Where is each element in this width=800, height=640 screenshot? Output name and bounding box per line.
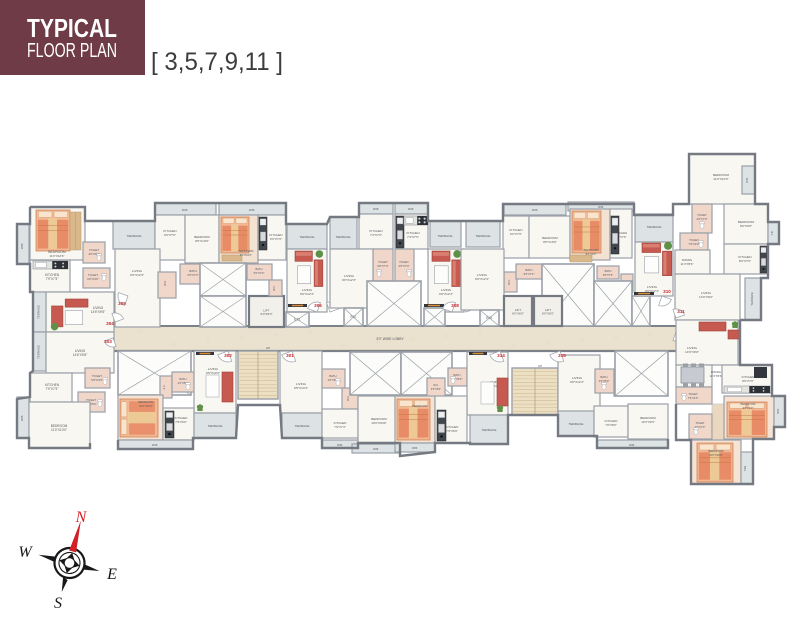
svg-text:UP: UP (538, 364, 542, 368)
svg-text:V.B.: V.B. (770, 230, 774, 235)
svg-text:BEDROOM11'0"X10'0": BEDROOM11'0"X10'0" (51, 424, 68, 432)
svg-text:LIVING9'0"X12'3": LIVING9'0"X12'3" (475, 273, 489, 281)
svg-text:311: 311 (677, 309, 685, 314)
svg-text:11'0"X10'0": 11'0"X10'0" (709, 453, 723, 457)
svg-text:KITCHEN7'9"X6'9": KITCHEN7'9"X6'9" (446, 425, 459, 433)
svg-text:W.B.: W.B. (373, 447, 379, 451)
svg-text:TERRACE: TERRACE (295, 424, 310, 428)
svg-text:KITCHEN6'0"X7'6": KITCHEN6'0"X7'6" (509, 228, 522, 236)
svg-text:11'0"X10'6": 11'0"X10'6" (49, 254, 64, 258)
svg-text:W.C.: W.C. (272, 285, 276, 291)
svg-text:9'6"X9'0": 9'6"X9'0" (743, 406, 754, 410)
svg-text:315: 315 (558, 353, 566, 358)
svg-text:E: E (106, 566, 117, 583)
svg-text:LIVING9'0"X12'3": LIVING9'0"X12'3" (439, 288, 453, 296)
svg-text:DINING11'3"X5'6": DINING11'3"X5'6" (681, 258, 694, 266)
svg-text:KITCHEN6'0"X7'6": KITCHEN6'0"X7'6" (163, 229, 176, 237)
svg-text:DINING11'3"X5'6": DINING11'3"X5'6" (710, 370, 723, 378)
svg-text:BEDROOM: BEDROOM (584, 248, 600, 252)
svg-text:W.B.: W.B. (249, 208, 256, 212)
svg-text:BEDROOM9'6"X9'6": BEDROOM9'6"X9'6" (738, 220, 754, 228)
svg-text:W.B.: W.B. (373, 207, 380, 211)
svg-text:306: 306 (314, 303, 322, 308)
svg-text:TER.: TER. (743, 465, 747, 471)
svg-text:TOILET5'6"X4'0": TOILET5'6"X4'0" (91, 374, 103, 382)
svg-text:KITCHEN7'6"X8'0": KITCHEN7'6"X8'0" (605, 419, 618, 427)
svg-text:W.B.: W.B. (745, 177, 749, 183)
svg-text:FLOOR PLAN: FLOOR PLAN (27, 40, 117, 62)
svg-text:W.C.: W.C. (507, 279, 511, 285)
svg-text:LIVING14'0"X9'0": LIVING14'0"X9'0" (685, 346, 699, 354)
svg-text:TYPICAL: TYPICAL (27, 13, 117, 43)
svg-text:TOILET7'0"X4'0": TOILET7'0"X4'0" (688, 238, 699, 246)
svg-text:TERRACE: TERRACE (37, 305, 41, 319)
svg-text:TERRACE: TERRACE (37, 345, 41, 359)
svg-text:KITCHEN6'0"X7'6": KITCHEN6'0"X7'6" (269, 233, 282, 241)
svg-text:[ 3,5,7,9,11 ]: [ 3,5,7,9,11 ] (151, 48, 283, 76)
svg-text:W.B.: W.B. (152, 443, 159, 447)
svg-text:302: 302 (224, 353, 232, 358)
svg-text:TERRACE: TERRACE (569, 422, 584, 426)
svg-text:F.D.: F.D. (350, 315, 356, 319)
svg-text:303: 303 (104, 339, 112, 344)
svg-text:TOILET4'0"X7'0": TOILET4'0"X7'0" (398, 260, 409, 268)
svg-text:W: W (18, 544, 33, 561)
svg-text:TERRACE: TERRACE (750, 292, 754, 305)
svg-text:KITCHEN7'9"X6'9": KITCHEN7'9"X6'9" (175, 416, 188, 424)
svg-text:W.C.: W.C. (163, 280, 167, 286)
svg-text:KITCHEN7'3"X7'6": KITCHEN7'3"X7'6" (406, 231, 419, 239)
svg-text:BEDROOM8'0"X10'9": BEDROOM8'0"X10'9" (194, 235, 210, 243)
svg-text:BEDROOM11'0"X10'3": BEDROOM11'0"X10'3" (713, 173, 729, 181)
svg-text:BEDROOM: BEDROOM (709, 449, 725, 453)
svg-text:A.C.: A.C. (163, 384, 166, 389)
svg-text:BEDROOM10'3"X9'3": BEDROOM10'3"X9'3" (640, 416, 656, 424)
svg-text:TERRACE: TERRACE (647, 225, 662, 229)
svg-text:BEDROOM: BEDROOM (413, 404, 429, 408)
svg-text:W.B.: W.B. (629, 443, 635, 447)
svg-text:LIVING9'6"X12'3": LIVING9'6"X12'3" (570, 376, 584, 384)
svg-text:BEDROOM8'0"X10'9": BEDROOM8'0"X10'9" (542, 236, 558, 244)
svg-text:N: N (75, 509, 88, 526)
svg-text:LIVING9'6"X10'3": LIVING9'6"X10'3" (206, 367, 220, 375)
svg-text:305: 305 (118, 301, 126, 306)
svg-text:304: 304 (106, 321, 114, 326)
svg-text:KITCHEN7'9"X7'3": KITCHEN7'9"X7'3" (334, 421, 347, 429)
svg-text:BEDROOM: BEDROOM (741, 402, 757, 406)
svg-text:TERRACE: TERRACE (476, 234, 491, 238)
svg-text:TOILET6'0"X4'0": TOILET6'0"X4'0" (87, 273, 99, 281)
svg-text:W.B.: W.B. (408, 207, 415, 211)
svg-text:KITCHEN8'0"X7'0": KITCHEN8'0"X7'0" (742, 375, 755, 383)
svg-text:LIVING9'5"X14'3": LIVING9'5"X14'3" (294, 382, 308, 390)
svg-text:TOILET4'0"X7'0": TOILET4'0"X7'0" (696, 213, 707, 221)
svg-text:310: 310 (663, 289, 671, 294)
svg-text:W.B.: W.B. (598, 205, 604, 209)
svg-text:W.B.: W.B. (20, 415, 24, 422)
svg-text:TERRACE: TERRACE (208, 424, 223, 428)
svg-text:LIVING14'6"X9'6": LIVING14'6"X9'6" (73, 349, 87, 357)
svg-text:301: 301 (286, 353, 294, 358)
svg-text:KITCHEN7'9"X7'3": KITCHEN7'9"X7'3" (45, 273, 60, 281)
svg-text:BEDROOM: BEDROOM (239, 249, 255, 253)
svg-text:BEDROOM10'0"X9'00": BEDROOM10'0"X9'00" (371, 417, 387, 425)
svg-text:LIVING9'0"X12'3": LIVING9'0"X12'3" (130, 269, 144, 277)
svg-text:W.B.: W.B. (20, 243, 24, 250)
svg-text:LIVING9'0"X12'3": LIVING9'0"X12'3" (342, 274, 356, 282)
svg-text:W.B.: W.B. (532, 208, 539, 212)
svg-text:TOILET6'0"X7'0": TOILET6'0"X7'0" (377, 260, 388, 268)
svg-text:S: S (54, 595, 62, 612)
svg-text:UP: UP (266, 346, 270, 350)
svg-text:8'0"X9'0": 8'0"X9'0" (586, 252, 597, 256)
svg-text:W.B.: W.B. (182, 208, 189, 212)
svg-text:W.B.: W.B. (337, 443, 343, 447)
svg-text:3'0" WIDE LOBBY: 3'0" WIDE LOBBY (376, 337, 404, 341)
svg-text:8'0"X10'0": 8'0"X10'0" (240, 253, 252, 257)
svg-text:314: 314 (497, 353, 505, 358)
svg-text:TERRACE: TERRACE (438, 234, 453, 238)
svg-text:TERRACE: TERRACE (127, 234, 142, 238)
svg-text:LIVING14'6"X9'6": LIVING14'6"X9'6" (91, 306, 105, 314)
svg-text:TERRACE: TERRACE (300, 235, 315, 239)
svg-text:TERRACE: TERRACE (336, 235, 351, 239)
svg-text:W.B.: W.B. (412, 446, 418, 450)
svg-text:KITCHEN7'3"X7'6": KITCHEN7'3"X7'6" (369, 229, 382, 237)
svg-text:LIVING14'0"X9'0": LIVING14'0"X9'0" (699, 291, 713, 299)
svg-text:KITCHEN8'0"X7'6": KITCHEN8'0"X7'6" (738, 255, 751, 263)
svg-text:308: 308 (451, 303, 459, 308)
svg-text:TERRACE: TERRACE (482, 428, 497, 432)
svg-text:BEDROOM: BEDROOM (139, 400, 155, 404)
svg-text:W.B.: W.B. (776, 408, 780, 414)
svg-text:LIVING9'0"X12'3": LIVING9'0"X12'3" (645, 285, 659, 293)
svg-text:10'0"X10'0": 10'0"X10'0" (139, 404, 153, 408)
svg-text:LIVING9'0"X12'3": LIVING9'0"X12'3" (300, 288, 314, 296)
svg-text:KITCHEN7'9"X7'3": KITCHEN7'9"X7'3" (45, 383, 60, 391)
svg-text:E.D.: E.D. (486, 316, 493, 320)
svg-text:E.D.: E.D. (294, 318, 301, 322)
